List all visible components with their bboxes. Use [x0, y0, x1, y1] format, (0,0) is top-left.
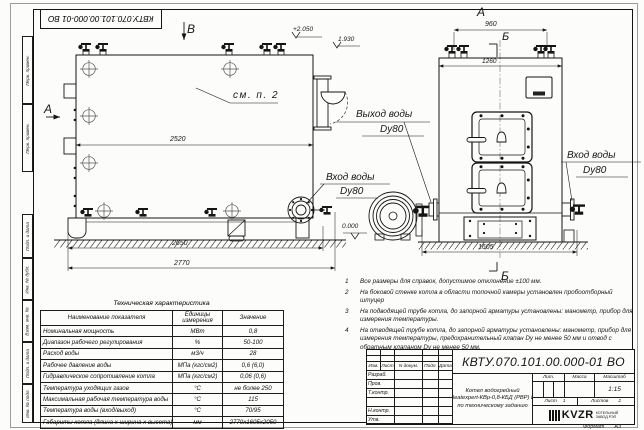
- view-label-a-top: А: [477, 6, 485, 18]
- section-label-a-left: А: [44, 103, 52, 115]
- tb-row-prov: Пров.: [367, 380, 395, 389]
- tb-scale-value: 1:15: [595, 382, 634, 398]
- tb-hdr-podp: Подп.: [423, 362, 439, 371]
- flue-fan: [369, 192, 422, 240]
- front-roof-stubs: [449, 53, 554, 58]
- company-logo: KVZR КОТЕЛЬНЫЙ ЗАВОД РЭП: [533, 409, 634, 421]
- notes-list: 1Все размеры для справок, допустимое отк…: [345, 278, 633, 354]
- front-right-stub: [562, 199, 585, 242]
- drain-valve-icons: [80, 209, 217, 217]
- spec-table: Наименование показателя Единицы измерени…: [40, 310, 284, 429]
- position-cross-marks: [80, 60, 241, 220]
- elevation-0000: 0.000: [342, 224, 358, 231]
- kvzr-logo-text: KVZR: [562, 409, 594, 421]
- spec-row: Рабочее давление водыМПа (кгс/см2)0,6 (6…: [41, 360, 284, 371]
- elevation-2050: +2.050: [293, 27, 313, 34]
- tb-lit-label: Лит.: [533, 374, 565, 382]
- tb-row-nkontr: Н.контр.: [367, 407, 395, 416]
- upper-door: [467, 112, 532, 162]
- tb-scale-label: Масштаб: [595, 374, 634, 382]
- spec-row: Максимальная рабочая температура воды°С1…: [41, 394, 284, 405]
- lower-door: [467, 163, 532, 213]
- spec-row: Гидравлическое сопротивление котлаМПа (к…: [41, 371, 284, 382]
- spec-row: Габариты котла (длина х ширина х высота)…: [41, 417, 284, 428]
- tb-hdr-data: Дата: [439, 362, 453, 371]
- tb-logo-cell: KVZR КОТЕЛЬНЫЙ ЗАВОД РЭП: [533, 406, 634, 424]
- spec-header-row: Наименование показателя Единицы измерени…: [41, 311, 284, 326]
- tb-sheet: Лист1: [533, 398, 578, 406]
- roof-stubs: [83, 51, 284, 56]
- door-latch: [497, 183, 506, 193]
- water-outlet-dn: Dy80: [380, 125, 403, 135]
- spec-row: Температура уходящих газов°Сне более 250: [41, 382, 284, 393]
- spec-table-title: Техническая характеристика: [40, 300, 283, 307]
- kvzr-logo-subtext: КОТЕЛЬНЫЙ ЗАВОД РЭП: [596, 411, 619, 419]
- door-handle: [467, 189, 486, 194]
- callout-lines: [196, 88, 641, 204]
- tb-sheets: Листов2: [578, 398, 634, 406]
- section-label-b-top: Б: [502, 32, 509, 43]
- drawing-sheet: КВТУ.070.101.00.000-01 ВО Перв. примен. …: [0, 0, 644, 430]
- side-drain-valve-icon: [319, 207, 332, 215]
- dim-1260: 1260: [482, 59, 496, 66]
- see-note-callout: см. п. 2: [233, 91, 279, 101]
- door-latch: [497, 132, 506, 142]
- side-view: [64, 44, 348, 241]
- tb-doc-number: КВТУ.070.101.00.000-01 ВО: [453, 350, 634, 374]
- water-outlet-label: Выход воды: [356, 110, 412, 120]
- tb-hdr-list: Лист: [381, 362, 395, 371]
- spec-row: Расход водым3/ч28: [41, 348, 284, 359]
- note-item: 2На боковой стенке котла в области топоч…: [345, 289, 633, 306]
- view-label-v: В: [187, 23, 195, 35]
- spec-row: Диапазон рабочего регулирования%50-100: [41, 337, 284, 348]
- dim-2520: 2520: [170, 136, 186, 143]
- dim-2770: 2770: [174, 260, 190, 267]
- tb-product-name: Котел водогрейный Heatexpert-КВр-0,8-КБД…: [453, 374, 533, 424]
- dim-960: 960: [485, 21, 497, 28]
- spec-row: Номинальная мощностьМВт0,8: [41, 326, 284, 337]
- tb-hdr-izm: Изм.: [367, 362, 381, 371]
- tb-row-utv: Утв.: [367, 416, 395, 424]
- front-view: [413, 40, 585, 258]
- control-panel: [526, 77, 552, 98]
- dim-1605: 1605: [478, 244, 494, 251]
- water-inlet-left-label: Вход воды: [326, 173, 375, 183]
- tb-hdr-doc: N докум.: [395, 362, 423, 371]
- inlet-flange: [288, 197, 314, 223]
- roof-valve-icons: [78, 44, 286, 52]
- water-inlet-right-dn: Dy80: [583, 166, 606, 176]
- view-marks: [46, 22, 497, 271]
- water-inlet-left-dn: Dy80: [340, 187, 363, 197]
- tb-row-tkontr: Т.контр.: [367, 389, 395, 398]
- dimension-lines: [68, 30, 577, 271]
- kvzr-logo-icon: [549, 410, 560, 421]
- note-item: 3На подводящей трубе котла, до запорной …: [345, 308, 633, 325]
- door-handle: [467, 138, 486, 143]
- tb-row-razrab: Разраб.: [367, 371, 395, 380]
- title-block: Изм. Лист N докум. Подп. Дата Разраб. Пр…: [366, 349, 635, 425]
- note-item: 1Все размеры для справок, допустимое отк…: [345, 278, 633, 286]
- tb-massa-label: Масса: [565, 374, 595, 382]
- dim-2650: 2650: [172, 240, 188, 247]
- water-inlet-right-label: Вход воды: [567, 151, 616, 161]
- elevation-1930: 1.930: [338, 37, 354, 44]
- format-note: ФорматА3: [583, 424, 621, 430]
- spec-row: Температура воды (вход/выход)°С70/95: [41, 405, 284, 416]
